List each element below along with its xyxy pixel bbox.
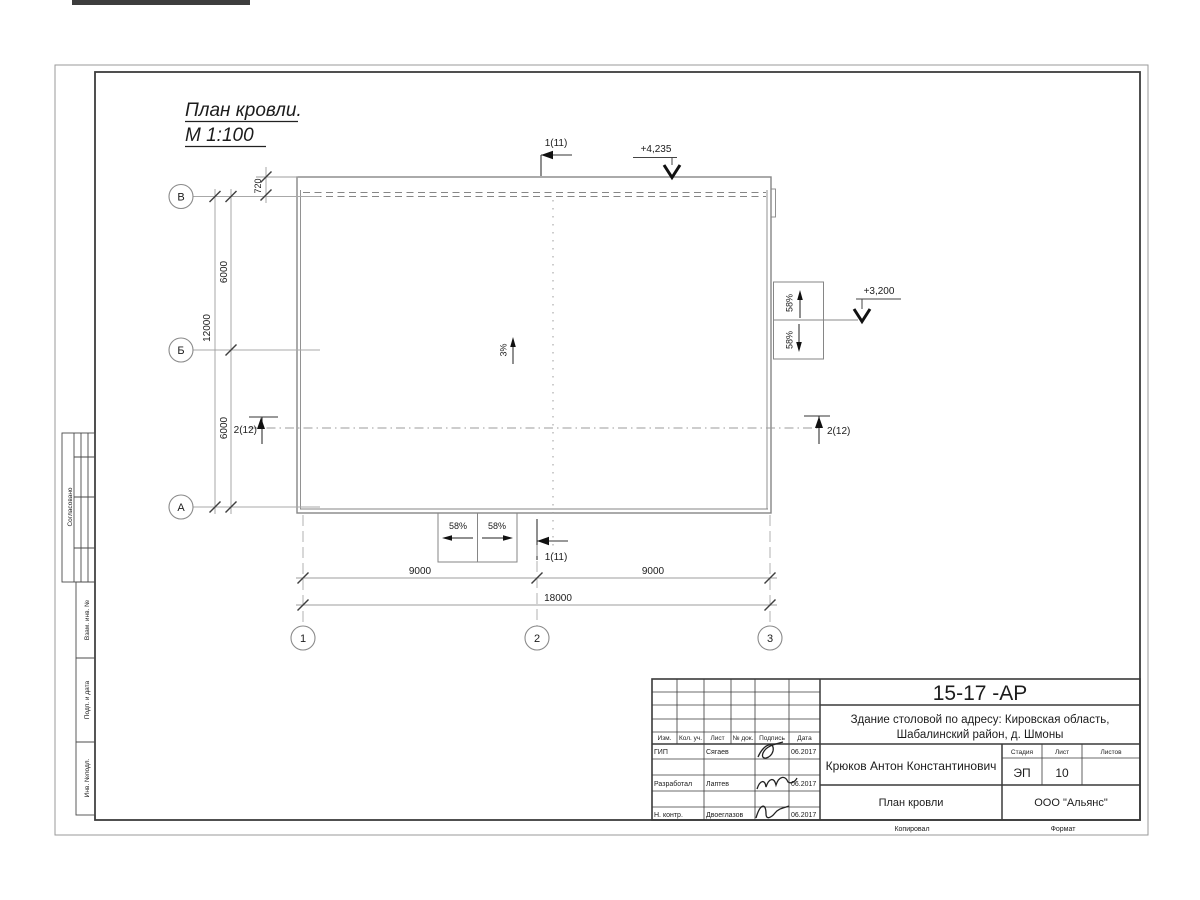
stamp-object-line1: Здание столовой по адресу: Кировская обл… bbox=[851, 714, 1110, 726]
margin-label-replace-inv: Взам. инв. № bbox=[84, 600, 91, 640]
axis-label-col-left: 1 bbox=[300, 633, 306, 645]
bottom-dimensions: 9000 9000 18000 bbox=[296, 566, 777, 611]
drawing-sheet: Согласовано Взам. инв. № Подп. и дата Ин… bbox=[0, 0, 1200, 900]
drawing-title: План кровли. М 1:100 bbox=[185, 100, 302, 147]
stamp-format-label: Формат bbox=[1051, 826, 1077, 833]
slope-arrow-right bbox=[503, 535, 513, 541]
dim-value: 12000 bbox=[202, 314, 213, 342]
roof-plan-drawing: Согласовано Взам. инв. № Подп. и дата Ин… bbox=[0, 0, 1200, 900]
stamp-name: Двоеглазов bbox=[706, 812, 743, 819]
dim-value: 9000 bbox=[642, 566, 665, 577]
margin-label-approved: Согласовано bbox=[67, 487, 74, 526]
canopy-right-slopes: 58% 58% bbox=[785, 290, 803, 352]
section-arrow-icon bbox=[537, 537, 549, 545]
stamp-name: Лаптев bbox=[706, 781, 729, 788]
margin-label-inv-orig: Инв. №подл. bbox=[84, 758, 91, 797]
section-arrow-icon bbox=[815, 417, 823, 429]
stamp-stage-header: Стадия bbox=[1011, 749, 1034, 756]
section-arrow-icon bbox=[541, 151, 553, 159]
slope-arrow-left bbox=[442, 535, 452, 541]
section-label: 1(11) bbox=[545, 138, 568, 149]
stamp-stage-value: ЭП bbox=[1013, 766, 1030, 780]
stamp-col-izm: Изм. bbox=[658, 735, 672, 742]
stamp-col-doc: № док. bbox=[733, 735, 754, 742]
parapet-dimension: 720 bbox=[253, 167, 298, 203]
stamp-date: 06.2017 bbox=[791, 781, 816, 788]
dim-value: 18000 bbox=[544, 593, 572, 604]
section-label: 2(12) bbox=[234, 425, 257, 436]
title-block: Изм. Кол. уч. Лист № док. Подпись Дата Г… bbox=[652, 679, 1140, 833]
stamp-sheet-value: 10 bbox=[1055, 766, 1069, 780]
section-label: 1(11) bbox=[545, 552, 568, 563]
elevation-value: +3,200 bbox=[864, 286, 895, 297]
elevation-chevron-icon bbox=[664, 165, 680, 178]
slope-label: 58% bbox=[785, 294, 795, 312]
dimension-ticks bbox=[210, 191, 237, 513]
title-line1: План кровли. bbox=[185, 100, 302, 121]
axis-label-col-mid: 2 bbox=[534, 633, 540, 645]
left-dimensions: 6000 12000 6000 bbox=[202, 189, 237, 514]
dim-value: 720 bbox=[253, 178, 263, 193]
slope-label: 58% bbox=[785, 331, 795, 349]
stamp-date: 06.2017 bbox=[791, 749, 816, 756]
axis-label-row-top: В bbox=[177, 192, 184, 204]
elevation-mark-top: +4,235 bbox=[633, 144, 680, 178]
section-mark-2-right: 2(12) bbox=[804, 416, 850, 444]
elevation-value: +4,235 bbox=[641, 144, 672, 155]
stamp-sheet-header: Лист bbox=[1055, 749, 1069, 756]
slope-label: 58% bbox=[488, 521, 506, 531]
stamp-copied-label: Копировал bbox=[894, 826, 929, 833]
section-mark-1-top: 1(11) bbox=[541, 138, 572, 176]
slope-arrow-up bbox=[510, 337, 516, 347]
stamp-col-date: Дата bbox=[797, 735, 812, 742]
margin-label-sign-date: Подп. и дата bbox=[84, 680, 91, 719]
slope-arrow-up bbox=[797, 290, 803, 300]
stamp-object-line2: Шабалинский район, д. Шмоны bbox=[897, 729, 1064, 741]
slope-arrow-down bbox=[796, 342, 802, 352]
section-label: 2(12) bbox=[827, 426, 850, 437]
dim-value: 6000 bbox=[219, 260, 230, 283]
window-edge-artifact bbox=[72, 0, 250, 5]
stamp-sheet-name: План кровли bbox=[879, 797, 944, 809]
stamp-sheets-header: Листов bbox=[1100, 749, 1122, 756]
stamp-organization: ООО "Альянс" bbox=[1034, 797, 1108, 809]
slope-label: 3% bbox=[499, 343, 509, 356]
stamp-name: Сягаев bbox=[706, 749, 729, 756]
axis-label-row-mid: Б bbox=[177, 345, 184, 357]
section-mark-1-bottom: 1(11) bbox=[537, 519, 568, 563]
slope-label: 58% bbox=[449, 521, 467, 531]
main-slope-mark: 3% bbox=[499, 337, 516, 364]
title-line2: М 1:100 bbox=[185, 125, 254, 146]
stamp-role: Н. контр. bbox=[654, 812, 683, 819]
dim-value: 9000 bbox=[409, 566, 432, 577]
stamp-doc-number: 15-17 -АР bbox=[933, 682, 1028, 705]
dim-value: 6000 bbox=[219, 416, 230, 439]
axis-label-col-right: 3 bbox=[767, 633, 773, 645]
elevation-mark-right: +3,200 bbox=[824, 286, 902, 322]
inner-frame bbox=[95, 72, 1140, 820]
stamp-role: ГИП bbox=[654, 749, 668, 756]
stamp-role: Разработал bbox=[654, 780, 692, 788]
stamp-date: 06.2017 bbox=[791, 812, 816, 819]
roof-outline bbox=[297, 177, 776, 513]
section-mark-2-left: 2(12) bbox=[234, 417, 278, 444]
stamp-col-list: Лист bbox=[710, 735, 724, 742]
axis-label-row-bottom: А bbox=[177, 502, 185, 514]
stamp-col-kol: Кол. уч. bbox=[679, 735, 702, 742]
section-arrow-icon bbox=[257, 418, 265, 430]
stamp-col-sign: Подпись bbox=[759, 735, 785, 742]
stamp-author: Крюков Антон Константинович bbox=[826, 759, 997, 773]
